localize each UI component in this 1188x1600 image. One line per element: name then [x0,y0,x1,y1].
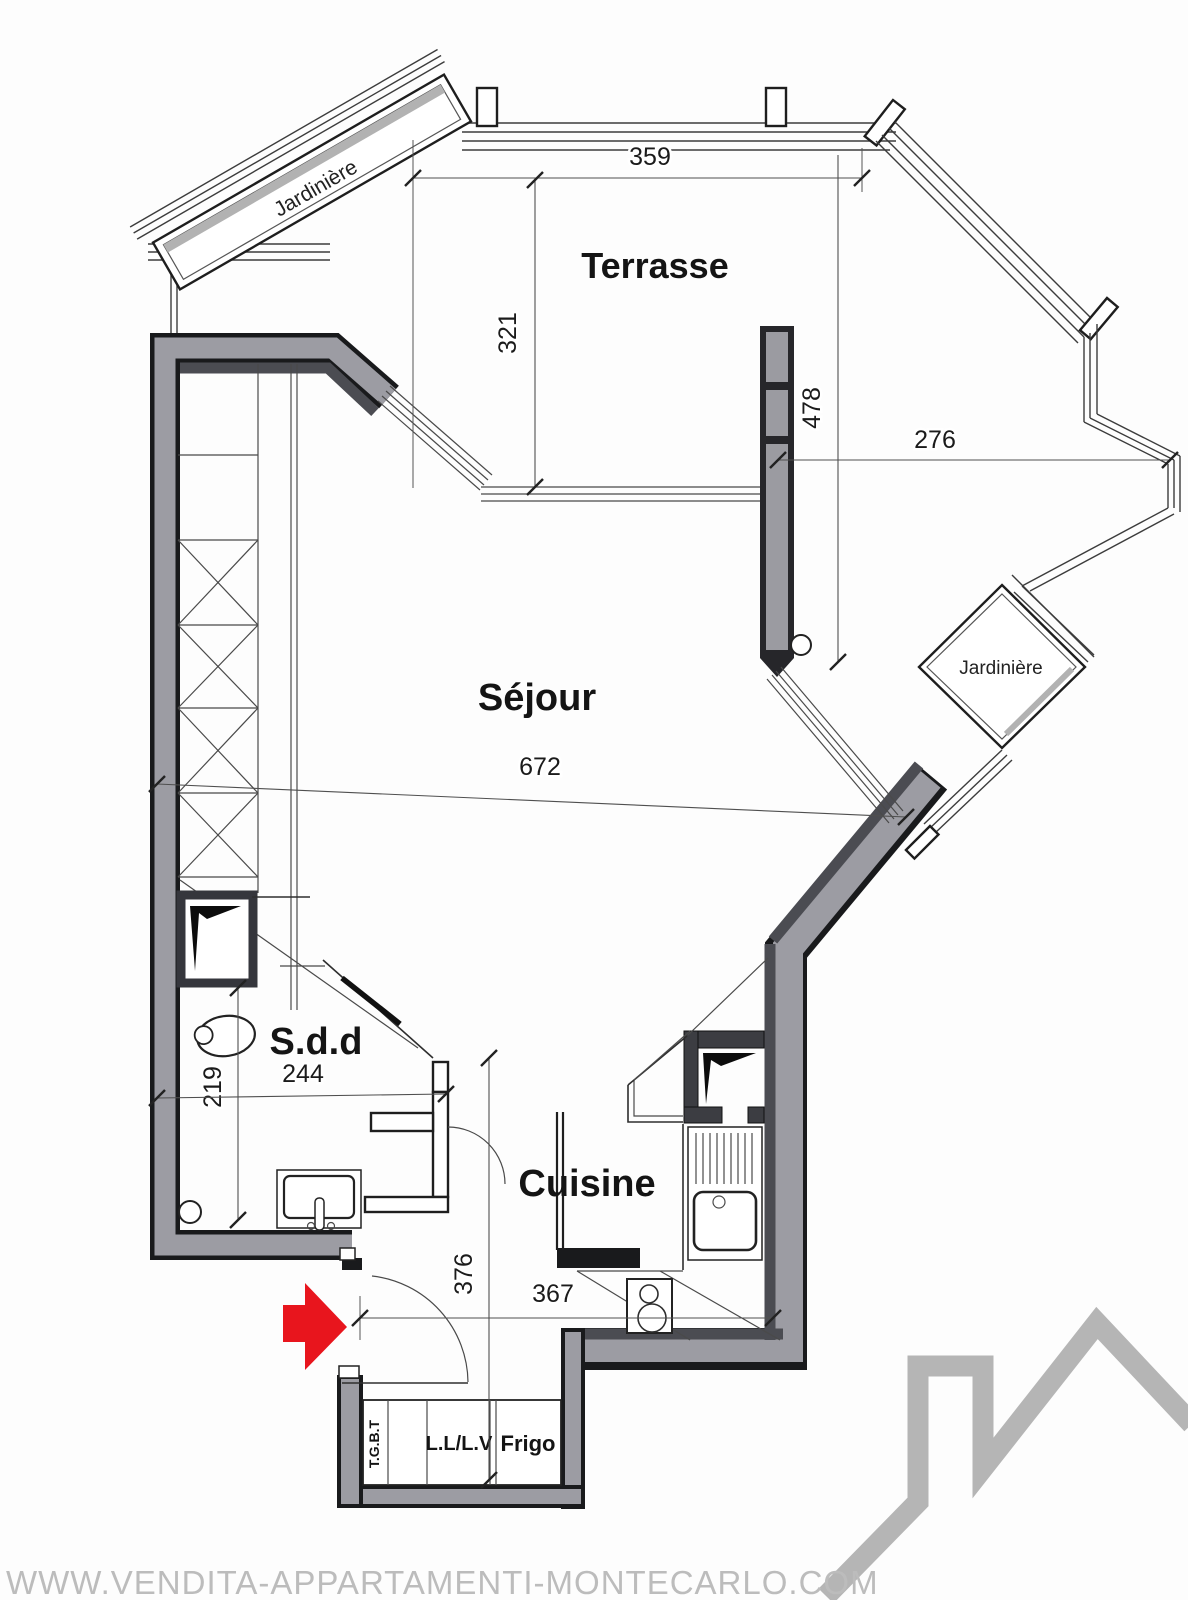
toilet [193,1012,258,1060]
washer-label: L.L/L.V [426,1433,493,1455]
bathroom-duct [181,895,253,983]
floor-drain [179,1201,201,1223]
kitchen-walls [337,765,931,1509]
washbasin [277,1170,361,1230]
railing-post [766,88,786,126]
floor-plan-page: Jardinière Jardinière [0,0,1188,1600]
kitchen-duct [684,1031,764,1123]
dim-bath-width: 244 [282,1060,324,1088]
dim-living-width: 672 [519,753,561,781]
house-logo [826,1323,1188,1596]
dim-terrace-width: 359 [629,143,671,171]
room-label-terrace: Terrasse [581,245,728,286]
planter-top-left: Jardinière [130,49,477,295]
technical-closet: T.G.B.T L.L/L.V Frigo [363,1400,561,1485]
door-pivot [791,635,811,655]
watermark: WWW.VENDITA-APPARTAMENTI-MONTECARLO.COM [6,1564,879,1600]
dim-hall-height: 376 [450,1253,478,1295]
bathroom-door-arc [448,1127,505,1184]
planter-right-label: Jardinière [959,658,1042,679]
floor-plan-drawing: Jardinière Jardinière [0,0,1188,1600]
dim-bath-depth: 219 [199,1066,227,1108]
glazed-pier-wall [760,326,811,677]
dim-living-height: 478 [798,387,826,429]
fridge-label: Frigo [501,1431,556,1456]
bay-window-northwest [378,386,492,490]
terrace-floor-edge [481,487,760,501]
room-label-bathroom: S.d.d [270,1021,363,1063]
sliding-glass-door-southeast [767,667,903,823]
railing-post [477,88,497,126]
dim-kitchen-width: 367 [532,1280,574,1308]
dim-terrace-right-width: 276 [914,426,956,454]
room-label-living: Séjour [478,677,596,719]
exterior-walls [165,348,389,1270]
room-label-kitchen: Cuisine [518,1163,655,1205]
kitchen-sink [683,1124,762,1270]
planter-right: Jardinière [919,575,1094,748]
partition-end-cap [557,1248,640,1268]
entrance-arrow-icon [283,1283,347,1370]
main-panel-label: T.G.B.T [366,1419,382,1468]
dim-terrace-depth: 321 [494,312,522,354]
bathroom-partition [365,1062,505,1212]
